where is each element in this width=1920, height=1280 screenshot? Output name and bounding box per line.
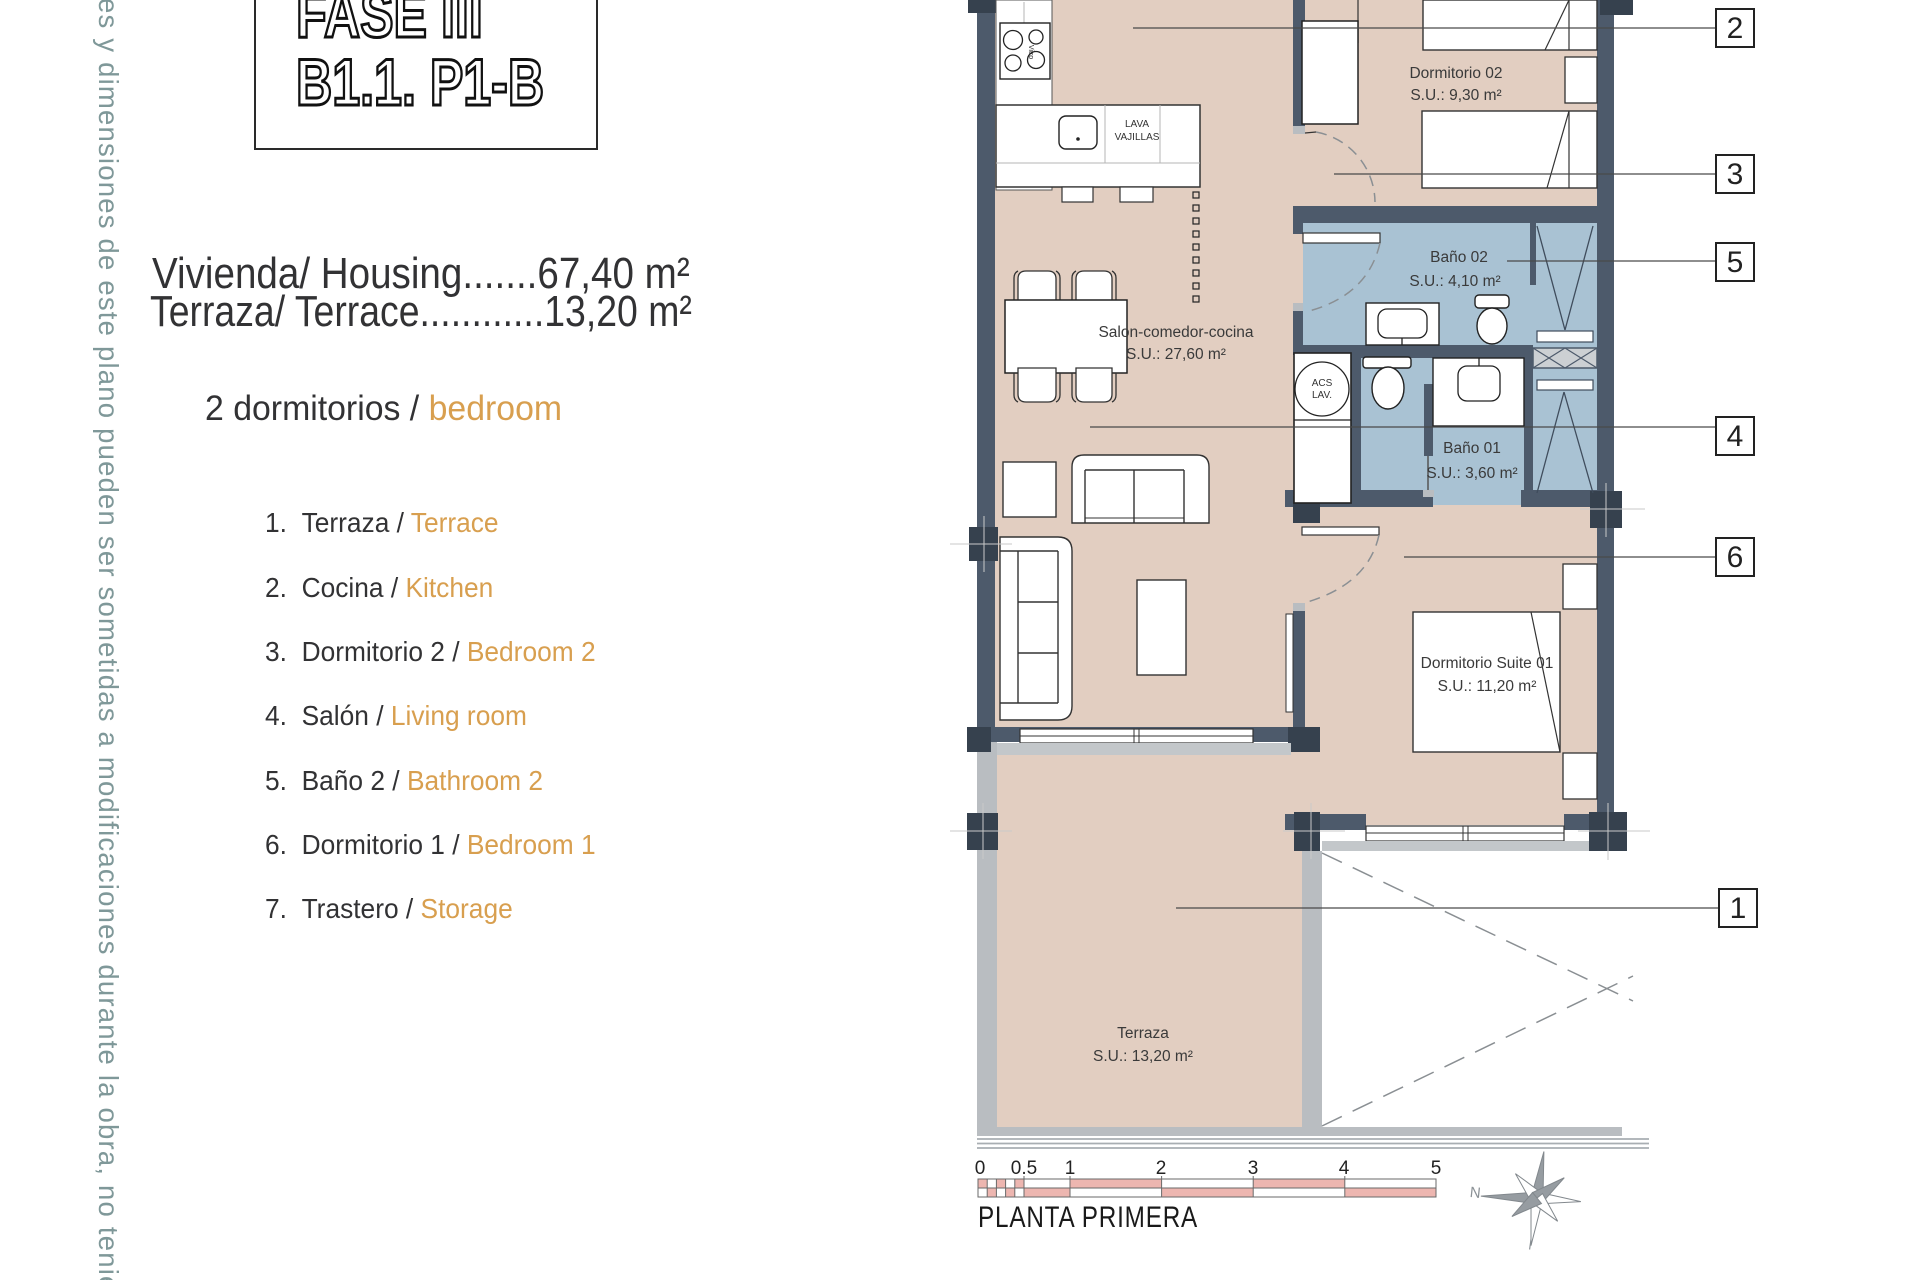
svg-text:S.U.: 27,60 m²: S.U.: 27,60 m² [1126, 346, 1226, 363]
svg-text:S.U.: 3,60 m²: S.U.: 3,60 m² [1426, 465, 1517, 482]
svg-text:0: 0 [975, 1158, 986, 1179]
svg-text:2: 2 [1156, 1158, 1167, 1179]
svg-text:Dormitorio Suite 01: Dormitorio Suite 01 [1421, 655, 1554, 672]
svg-text:2: 2 [1727, 12, 1744, 45]
svg-text:ACS: ACS [1312, 378, 1333, 389]
svg-text:LAVA: LAVA [1125, 119, 1149, 130]
svg-text:0.5: 0.5 [1011, 1158, 1037, 1179]
svg-text:S.U.: 13,20 m²: S.U.: 13,20 m² [1093, 1048, 1193, 1065]
svg-text:LAV.: LAV. [1312, 390, 1332, 401]
svg-text:Baño 02: Baño 02 [1430, 249, 1488, 266]
svg-text:4: 4 [1727, 420, 1744, 453]
svg-text:Terraza: Terraza [1117, 1025, 1169, 1042]
svg-text:N: N [1469, 1184, 1482, 1202]
svg-text:Vitro: Vitro [1027, 45, 1034, 59]
svg-text:VAJILLAS: VAJILLAS [1115, 132, 1160, 143]
svg-text:1: 1 [1065, 1158, 1076, 1179]
svg-text:S.U.: 11,20 m²: S.U.: 11,20 m² [1438, 678, 1537, 695]
svg-text:Salon-comedor-cocina: Salon-comedor-cocina [1098, 324, 1253, 341]
svg-text:1: 1 [1730, 892, 1747, 925]
svg-text:6: 6 [1727, 541, 1744, 574]
svg-text:PLANTA PRIMERA: PLANTA PRIMERA [978, 1200, 1198, 1234]
svg-text:5: 5 [1431, 1158, 1442, 1179]
svg-text:Baño 01: Baño 01 [1443, 440, 1501, 457]
svg-text:5: 5 [1727, 246, 1744, 279]
svg-text:Dormitorio 02: Dormitorio 02 [1409, 65, 1502, 82]
svg-text:S.U.: 9,30 m²: S.U.: 9,30 m² [1410, 87, 1501, 104]
svg-text:4: 4 [1339, 1158, 1350, 1179]
svg-text:3: 3 [1727, 158, 1744, 191]
svg-text:3: 3 [1248, 1158, 1259, 1179]
svg-text:S.U.: 4,10 m²: S.U.: 4,10 m² [1409, 273, 1500, 290]
